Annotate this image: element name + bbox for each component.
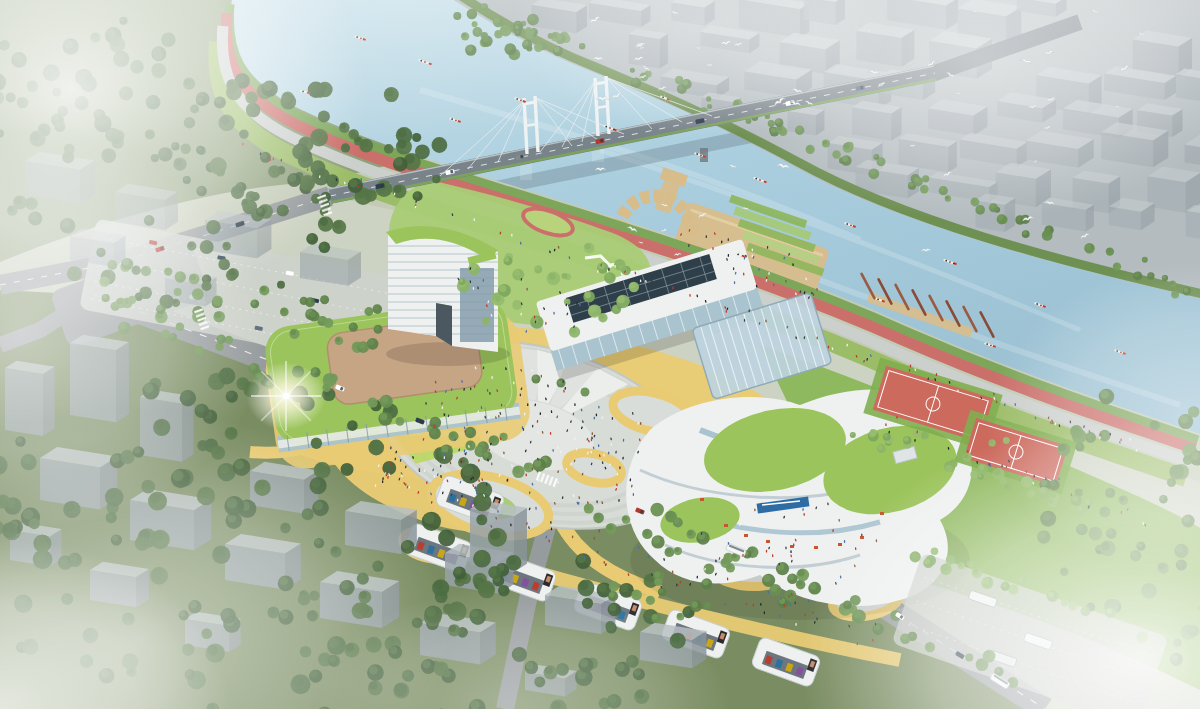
person-dot: [672, 286, 673, 289]
tree-highlight: [508, 556, 517, 565]
aerial-rendering: [0, 0, 1200, 709]
tree-highlight: [643, 530, 649, 536]
tree-highlight: [450, 432, 455, 437]
tree-highlight: [687, 530, 692, 535]
person-dot: [526, 288, 527, 291]
tree-highlight: [621, 584, 629, 592]
tree-highlight: [652, 504, 659, 511]
person-dot: [598, 406, 599, 409]
tree-highlight: [350, 323, 355, 328]
tree-highlight: [904, 437, 908, 441]
tree-highlight: [349, 179, 357, 187]
tree-highlight: [615, 260, 621, 266]
person-dot: [896, 416, 897, 419]
person-dot: [551, 527, 552, 530]
tree-highlight: [369, 398, 375, 404]
tree-highlight: [579, 581, 588, 590]
person-dot: [910, 365, 911, 368]
tree-highlight: [525, 463, 531, 469]
person-dot: [604, 561, 606, 564]
person-dot: [534, 315, 536, 318]
tree-highlight: [490, 436, 496, 442]
tree-highlight: [381, 396, 388, 403]
person-dot: [817, 337, 818, 340]
person-dot: [592, 432, 593, 435]
person-dot: [790, 603, 791, 606]
tree-highlight: [459, 279, 463, 283]
person-dot: [607, 270, 608, 273]
person-dot: [472, 476, 474, 479]
person-dot: [727, 578, 728, 581]
tree-highlight: [500, 433, 504, 437]
tree-highlight: [534, 459, 541, 466]
tree-highlight: [321, 296, 326, 301]
person-dot: [744, 257, 745, 260]
tree-highlight: [483, 452, 488, 457]
person-dot: [776, 558, 777, 561]
person-dot: [596, 500, 597, 503]
tree-highlight: [594, 513, 600, 519]
person-dot: [764, 611, 765, 614]
person-dot: [734, 281, 735, 284]
tree-highlight: [385, 145, 390, 150]
tree-highlight: [396, 418, 401, 423]
tree-highlight: [922, 432, 926, 436]
tree-highlight: [674, 518, 680, 524]
tree-highlight: [581, 388, 586, 393]
person-dot: [541, 375, 542, 378]
person-dot: [676, 584, 677, 587]
tree-highlight: [278, 281, 282, 285]
tree-highlight: [431, 418, 437, 424]
tree-highlight: [777, 563, 784, 570]
person-dot: [795, 623, 796, 626]
tree-highlight: [585, 292, 591, 298]
person-dot: [885, 423, 886, 426]
tree-highlight: [365, 308, 370, 313]
block-front: [1186, 211, 1200, 241]
person-dot: [594, 417, 595, 420]
person-dot: [828, 346, 829, 349]
tree-highlight: [549, 273, 556, 280]
tree-highlight: [374, 305, 379, 310]
tree-highlight: [358, 342, 365, 349]
tree-highlight: [1107, 248, 1112, 253]
tree-highlight: [779, 598, 785, 604]
tree-highlight: [585, 504, 591, 510]
tree-highlight: [632, 590, 638, 596]
person-dot: [464, 450, 465, 453]
person-dot: [574, 437, 575, 440]
person-dot: [608, 268, 609, 271]
tree-highlight: [483, 318, 487, 322]
tree-highlight: [599, 314, 604, 319]
tree-highlight: [562, 274, 565, 277]
tree-highlight: [570, 327, 576, 333]
tree-highlight: [504, 257, 509, 262]
person-dot: [520, 393, 521, 396]
person-dot: [470, 387, 471, 390]
tree-highlight: [605, 273, 611, 279]
tree-highlight: [321, 244, 326, 249]
person-dot: [602, 416, 603, 419]
person-dot: [511, 234, 513, 237]
tree-highlight: [395, 158, 403, 166]
person-dot: [728, 254, 729, 257]
person-dot: [914, 439, 916, 442]
person-dot: [574, 403, 576, 406]
person-dot: [706, 235, 708, 238]
tree-highlight: [310, 312, 316, 318]
person-dot: [813, 293, 815, 296]
tree-highlight: [763, 575, 770, 582]
tree-highlight: [722, 558, 728, 564]
tree-highlight: [654, 572, 660, 578]
person-dot: [576, 448, 577, 451]
tree-highlight: [433, 176, 437, 180]
person-dot: [405, 483, 406, 486]
person-dot: [790, 550, 791, 553]
tree-highlight: [610, 582, 616, 588]
tree-highlight: [475, 551, 485, 561]
tree-highlight: [513, 301, 519, 307]
tree-highlight: [1043, 231, 1049, 237]
tree-highlight: [607, 524, 613, 530]
tree-highlight: [424, 513, 435, 524]
tree-highlight: [416, 146, 424, 154]
tree-highlight: [702, 579, 708, 585]
tree-highlight: [1023, 231, 1027, 235]
tree-highlight: [490, 567, 497, 574]
tree-highlight: [490, 529, 501, 540]
tree-highlight: [1142, 257, 1145, 260]
tree-highlight: [666, 548, 671, 553]
tree-highlight: [318, 317, 324, 323]
tree-highlight: [653, 536, 660, 543]
person-dot: [375, 484, 376, 487]
person-dot: [425, 402, 426, 405]
person-dot: [733, 267, 734, 270]
tree-highlight: [647, 597, 652, 602]
tree-highlight: [290, 330, 296, 336]
person-dot: [382, 480, 383, 483]
tree-highlight: [370, 441, 379, 450]
tree-highlight: [301, 297, 306, 302]
person-dot: [779, 563, 780, 566]
tree-highlight: [477, 515, 483, 521]
tree-highlight: [623, 516, 628, 521]
person-dot: [524, 413, 525, 416]
tree-highlight: [613, 305, 618, 310]
tree-highlight: [514, 270, 521, 277]
tree-highlight: [797, 581, 802, 586]
tree-highlight: [655, 578, 660, 583]
person-dot: [792, 263, 794, 266]
person-dot: [598, 444, 599, 447]
person-dot: [506, 479, 507, 482]
person-dot: [640, 279, 641, 282]
tree-highlight: [499, 285, 506, 292]
person-dot: [728, 238, 729, 241]
person-dot: [489, 449, 490, 452]
person-dot: [909, 369, 910, 372]
tree-highlight: [577, 554, 586, 563]
tree-highlight: [659, 588, 664, 593]
tree-highlight: [585, 243, 591, 249]
rendering-stage: [0, 0, 1200, 709]
tree-highlight: [798, 570, 805, 577]
tree-highlight: [618, 296, 625, 303]
tree-highlight: [565, 299, 569, 303]
tree-highlight: [476, 446, 483, 453]
person-dot: [804, 513, 805, 516]
person-dot: [553, 312, 555, 315]
person-dot: [610, 443, 612, 446]
person-dot: [617, 473, 618, 476]
tree-highlight: [368, 339, 374, 345]
person-dot: [523, 428, 524, 431]
tree-highlight: [334, 221, 342, 229]
person-dot: [715, 559, 717, 562]
tree-highlight: [466, 428, 472, 434]
person-dot: [535, 507, 536, 510]
tree-highlight: [324, 319, 329, 324]
person-dot: [597, 550, 598, 553]
tree-highlight: [441, 446, 448, 453]
tree-highlight: [366, 190, 373, 197]
tree-highlight: [394, 185, 402, 193]
tree-highlight: [535, 266, 539, 270]
tree-highlight: [630, 283, 636, 289]
person-dot: [766, 276, 767, 279]
person-dot: [599, 530, 600, 533]
tree-highlight: [336, 337, 341, 342]
tree-highlight: [691, 601, 697, 607]
tree-highlight: [477, 483, 486, 492]
tree-highlight: [495, 296, 501, 302]
person-dot: [765, 320, 766, 323]
person-dot: [712, 247, 713, 250]
tree-highlight: [348, 421, 354, 427]
tree-highlight: [1085, 244, 1091, 250]
person-dot: [520, 242, 521, 245]
tree-highlight: [675, 548, 679, 552]
tower-glass-atrium: [460, 268, 494, 342]
tree-highlight: [1114, 263, 1119, 268]
tree-highlight: [374, 326, 379, 331]
tree-highlight: [870, 430, 874, 434]
tree-highlight: [589, 305, 596, 312]
tree-highlight: [850, 432, 853, 435]
tree-highlight: [788, 574, 794, 580]
person-dot: [474, 486, 475, 489]
person-dot: [537, 431, 538, 434]
person-dot: [540, 412, 542, 415]
person-dot: [566, 303, 567, 306]
person-dot: [767, 246, 768, 249]
tree-highlight: [666, 512, 673, 519]
person-dot: [744, 319, 745, 322]
person-dot: [531, 369, 532, 372]
person-dot: [550, 432, 551, 435]
person-dot: [526, 473, 527, 476]
tree-highlight: [324, 374, 332, 382]
person-dot: [444, 456, 445, 459]
tree-highlight: [430, 429, 436, 435]
tree-highlight: [705, 603, 709, 607]
tree-highlight: [884, 434, 888, 438]
person-dot: [633, 493, 634, 496]
person-dot: [597, 270, 598, 273]
person-dot: [520, 313, 522, 316]
tree-highlight: [398, 140, 407, 149]
tree-highlight: [380, 413, 388, 421]
tree-highlight: [677, 613, 681, 617]
tree-highlight: [414, 192, 420, 198]
tree-highlight: [513, 466, 520, 473]
person-dot: [510, 523, 512, 526]
person-dot: [612, 417, 613, 420]
tree-highlight: [532, 375, 537, 380]
tree-highlight: [312, 438, 318, 444]
tree-highlight: [598, 584, 606, 592]
person-dot: [619, 466, 620, 469]
person-dot: [603, 454, 604, 457]
person-dot: [497, 510, 498, 513]
person-dot: [527, 403, 528, 406]
tree-highlight: [440, 531, 449, 540]
person-dot: [726, 310, 727, 313]
tree-highlight: [684, 607, 691, 614]
person-dot: [957, 389, 959, 392]
person-dot: [596, 414, 597, 417]
tree-highlight: [878, 445, 883, 450]
person-dot: [795, 601, 796, 604]
tree-highlight: [454, 567, 461, 574]
tree-highlight: [281, 308, 286, 313]
